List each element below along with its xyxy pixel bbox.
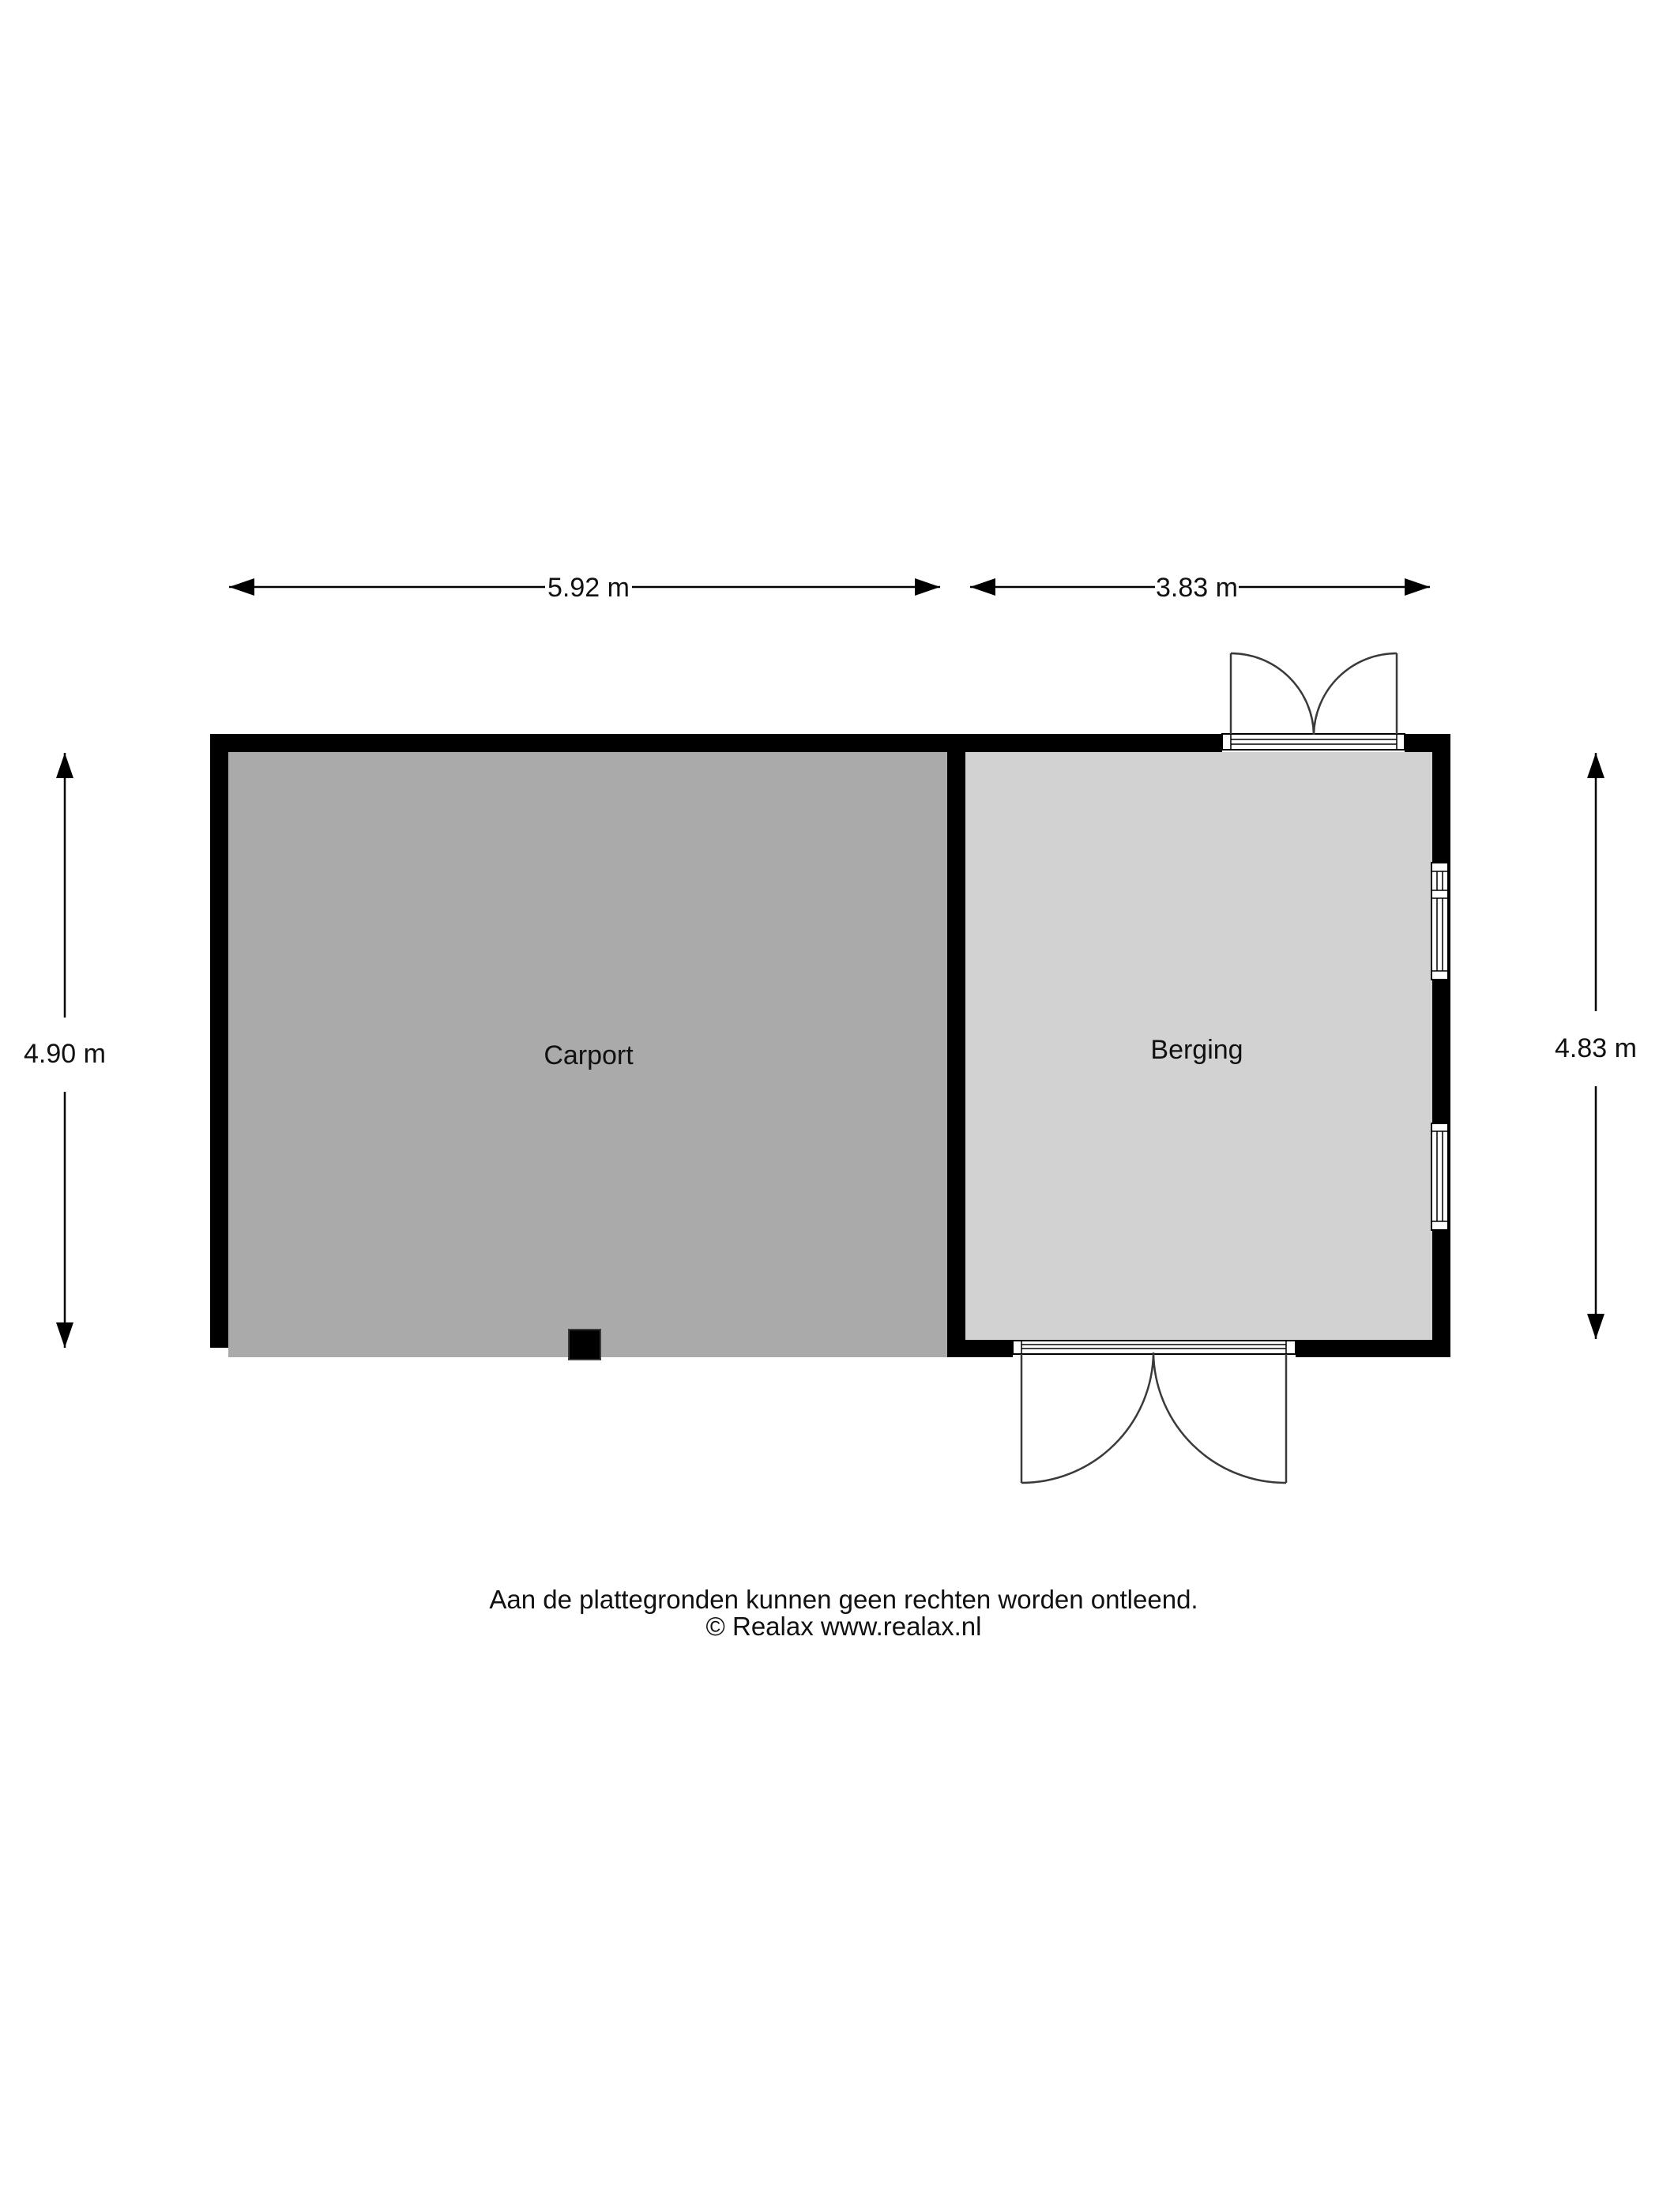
dimension-label-berging-height: 4.83 m — [1555, 1033, 1637, 1063]
arrow-left-icon — [970, 578, 995, 596]
footer-disclaimer: Aan de plattegronden kunnen geen rechten… — [489, 1585, 1198, 1614]
arrow-down-icon — [1587, 1314, 1604, 1339]
window-lower — [1431, 1123, 1448, 1230]
arrow-right-icon — [915, 578, 940, 596]
door-swing-arc — [1021, 1352, 1153, 1483]
door-top — [1222, 653, 1405, 750]
bottom-wall-right — [1296, 1340, 1450, 1357]
top-wall-main — [210, 734, 1222, 752]
left-wall — [210, 734, 228, 1348]
arrow-down-icon — [56, 1322, 73, 1348]
door-sill — [1222, 734, 1405, 750]
arrow-up-icon — [56, 753, 73, 778]
door-swing-arc — [1153, 1352, 1286, 1483]
door-swing-arc — [1231, 653, 1314, 735]
dimension-label-carport-width: 5.92 m — [547, 573, 630, 603]
divider-wall — [947, 734, 965, 1357]
door-swing-arc — [1314, 653, 1397, 735]
dimension-right-berging: 4.83 m — [1555, 753, 1637, 1339]
window-frame — [1431, 1123, 1448, 1230]
arrow-right-icon — [1405, 578, 1430, 596]
floorplan-canvas: 5.92 m 3.83 m 4.90 m 4.83 m — [0, 0, 1659, 2212]
carport-post — [569, 1330, 600, 1360]
dimension-left-carport: 4.90 m — [24, 753, 106, 1348]
dimension-label-carport-height: 4.90 m — [24, 1039, 106, 1069]
window-frame — [1431, 863, 1448, 980]
bottom-wall-left — [947, 1340, 1013, 1357]
right-wall — [1432, 734, 1450, 1357]
dimension-label-berging-width: 3.83 m — [1156, 573, 1238, 603]
door-sill — [1013, 1341, 1296, 1354]
room-label-carport: Carport — [544, 1040, 634, 1070]
arrow-up-icon — [1587, 753, 1604, 778]
window-upper — [1431, 863, 1448, 980]
room-label-berging: Berging — [1150, 1035, 1243, 1065]
footer-copyright: © Realax www.realax.nl — [706, 1612, 982, 1641]
dimension-top-carport: 5.92 m — [229, 573, 940, 603]
door-bottom — [1013, 1341, 1296, 1483]
arrow-left-icon — [229, 578, 254, 596]
dimension-top-berging: 3.83 m — [970, 573, 1430, 603]
